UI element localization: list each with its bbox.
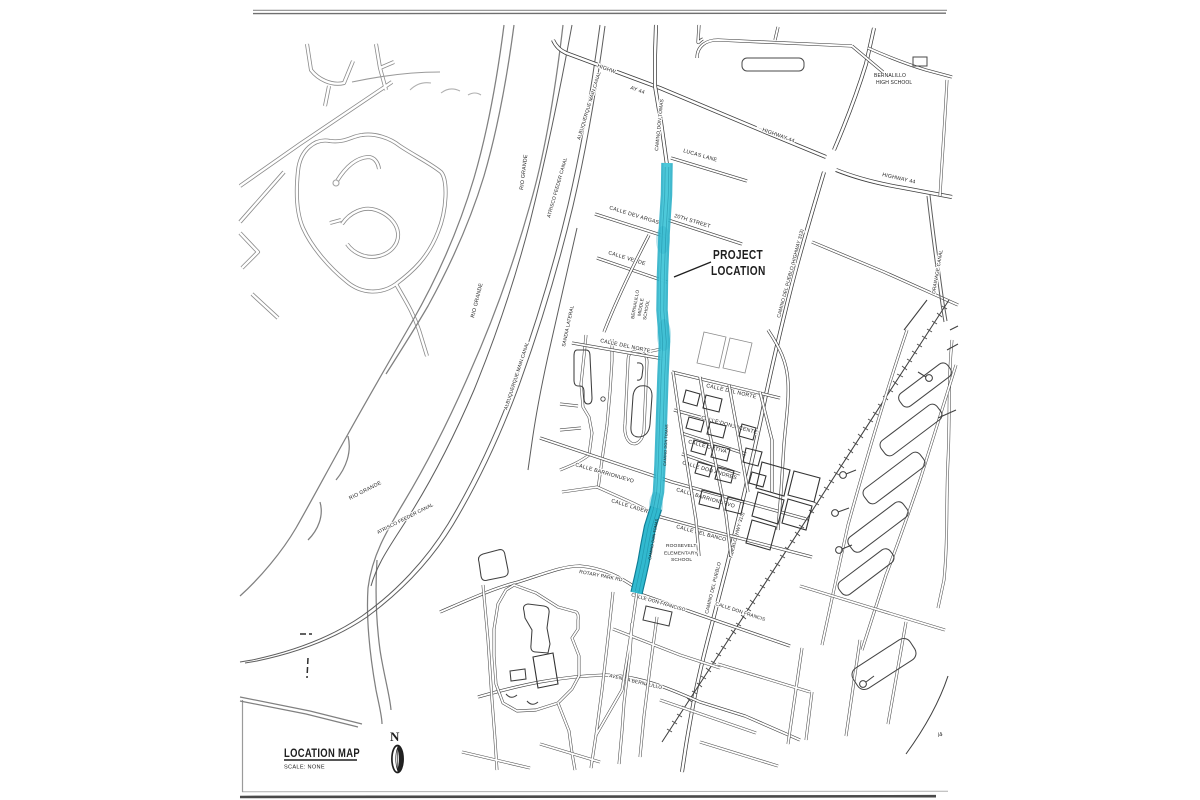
svg-text:ELEMENTARY: ELEMENTARY bbox=[664, 551, 698, 557]
svg-text:PROJECT: PROJECT bbox=[713, 248, 763, 262]
svg-text:ROOSEVELT: ROOSEVELT bbox=[666, 543, 696, 549]
svg-text:LOCATION: LOCATION bbox=[711, 264, 766, 278]
svg-text:N: N bbox=[390, 729, 400, 744]
svg-text:BERNALILLO: BERNALILLO bbox=[874, 73, 906, 79]
svg-text:SCALE: NONE: SCALE: NONE bbox=[284, 765, 325, 771]
svg-text:HIGH SCHOOL: HIGH SCHOOL bbox=[876, 80, 912, 86]
svg-text:LOCATION MAP: LOCATION MAP bbox=[284, 747, 360, 760]
svg-text:SCHOOL: SCHOOL bbox=[671, 557, 692, 563]
